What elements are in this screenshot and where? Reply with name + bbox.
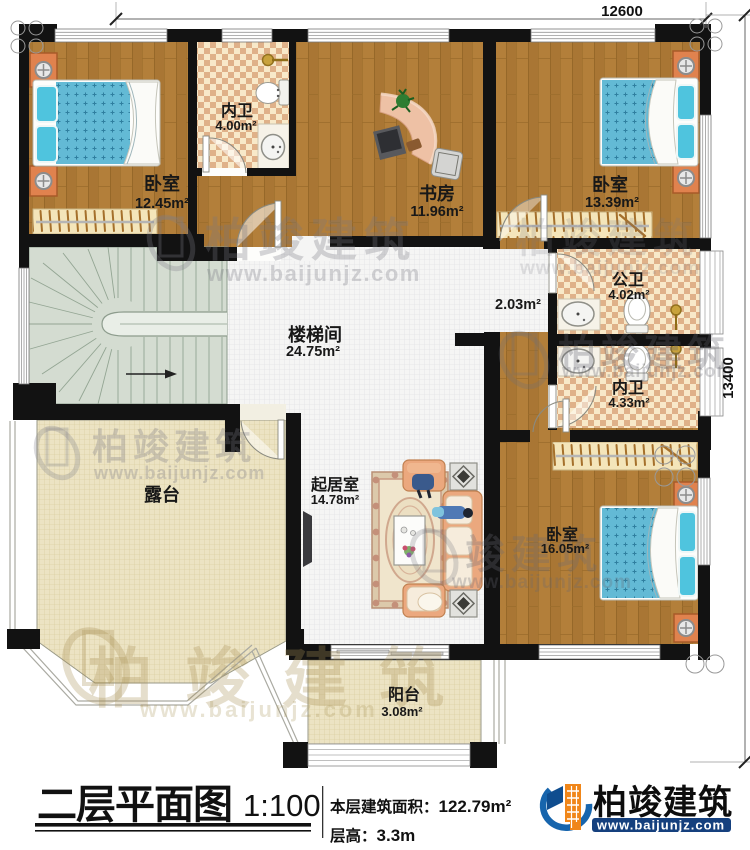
svg-text:11.96m²: 11.96m² bbox=[410, 204, 463, 220]
svg-text:www.baijunjz.com: www.baijunjz.com bbox=[139, 697, 378, 722]
svg-text:www.baijunjz.com: www.baijunjz.com bbox=[561, 361, 733, 381]
svg-text:12.45m²: 12.45m² bbox=[135, 196, 189, 212]
svg-text:14.78m²: 14.78m² bbox=[311, 492, 360, 507]
svg-text:卧室: 卧室 bbox=[592, 174, 628, 195]
svg-text:12600: 12600 bbox=[601, 3, 643, 20]
svg-text:1:100: 1:100 bbox=[243, 788, 321, 823]
svg-text:楼梯间: 楼梯间 bbox=[288, 324, 342, 345]
svg-text:4.33m²: 4.33m² bbox=[608, 395, 650, 410]
svg-text:露台: 露台 bbox=[144, 484, 180, 505]
svg-text:www.baijunjz.com: www.baijunjz.com bbox=[206, 261, 421, 286]
svg-text:www.baijunjz.com: www.baijunjz.com bbox=[519, 258, 700, 279]
svg-text:www.baijunjz.com: www.baijunjz.com bbox=[451, 572, 632, 593]
svg-text:4.00m²: 4.00m² bbox=[215, 118, 257, 133]
svg-text:本层建筑面积：122.79m²: 本层建筑面积：122.79m² bbox=[330, 797, 512, 816]
svg-text:24.75m²: 24.75m² bbox=[286, 344, 340, 360]
svg-text:3.08m²: 3.08m² bbox=[381, 704, 423, 719]
svg-text:16.05m²: 16.05m² bbox=[541, 541, 590, 556]
svg-text:柏竣建筑: 柏竣建筑 bbox=[515, 217, 699, 261]
svg-text:4.02m²: 4.02m² bbox=[608, 287, 650, 302]
svg-text:13.39m²: 13.39m² bbox=[585, 195, 639, 211]
svg-text:柏竣建筑: 柏竣建筑 bbox=[205, 214, 417, 266]
svg-text:二层平面图: 二层平面图 bbox=[37, 783, 232, 827]
svg-text:卧室: 卧室 bbox=[144, 173, 180, 194]
svg-text:柏竣建筑: 柏竣建筑 bbox=[593, 783, 733, 822]
svg-text:www.baijunjz.com: www.baijunjz.com bbox=[596, 818, 725, 833]
svg-text:书房: 书房 bbox=[419, 183, 455, 204]
svg-text:阳台: 阳台 bbox=[388, 685, 420, 704]
svg-text:www.baijunjz.com: www.baijunjz.com bbox=[93, 463, 265, 483]
svg-text:柏竣建筑: 柏竣建筑 bbox=[92, 426, 256, 467]
svg-text:13400: 13400 bbox=[720, 357, 737, 399]
svg-text:2.03m²: 2.03m² bbox=[495, 297, 541, 313]
svg-text:层高：3.3m: 层高：3.3m bbox=[330, 826, 415, 845]
